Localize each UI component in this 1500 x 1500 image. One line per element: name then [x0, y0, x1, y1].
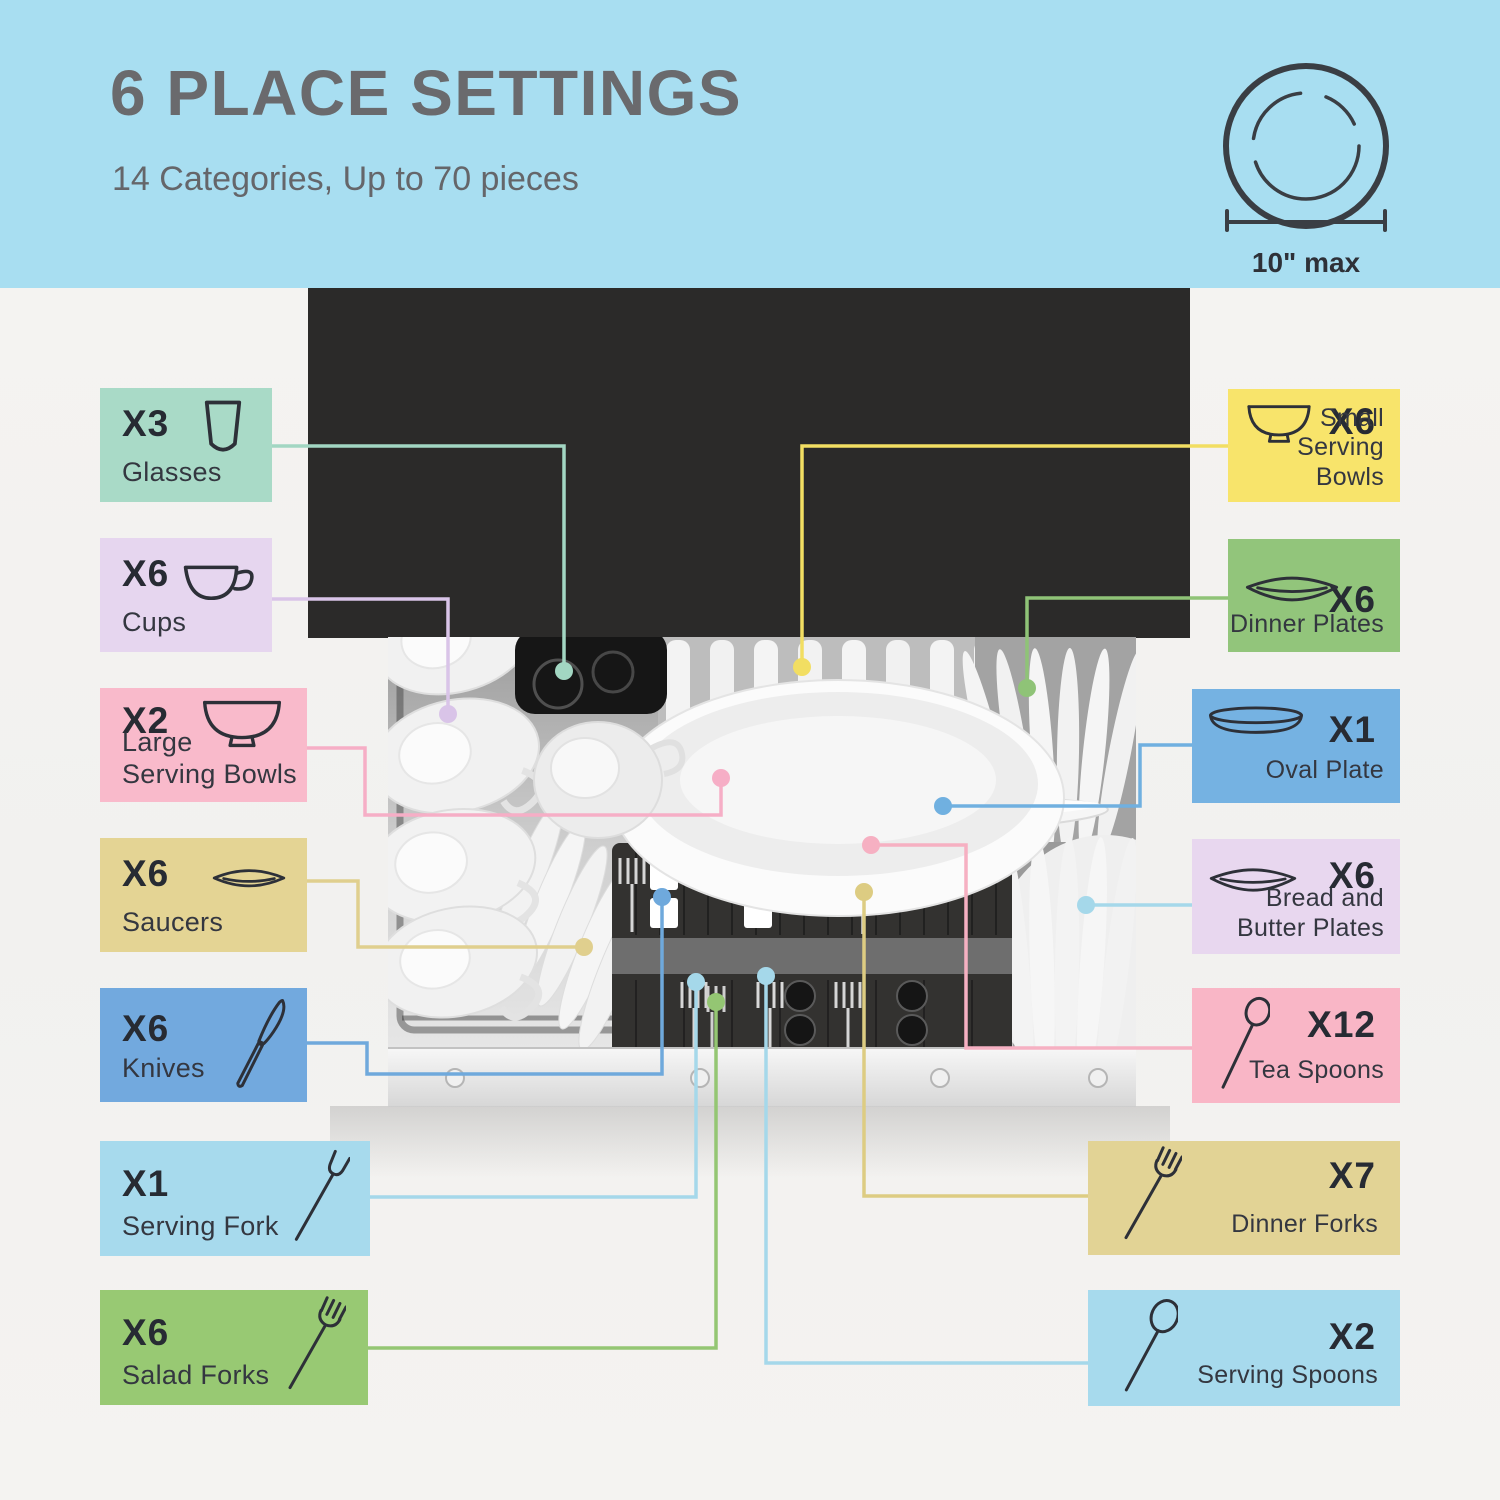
plate-size-label: 10" max	[1221, 247, 1391, 279]
item-name: Large Serving Bowls	[122, 727, 297, 791]
dot-glasses	[555, 662, 573, 680]
dot-small-serving-bowls	[793, 658, 811, 676]
glasses-group	[515, 630, 667, 714]
item-count: X2	[1329, 1316, 1376, 1358]
dishwasher-lid-panel	[308, 288, 1190, 638]
item-name: Dinner Forks	[1231, 1210, 1378, 1240]
dishwasher-interior	[360, 569, 1220, 1107]
item-name: Serving Spoons	[1197, 1361, 1378, 1391]
header-band: 6 PLACE SETTINGS 14 Categories, Up to 70…	[0, 0, 1500, 288]
cup-icon	[182, 560, 258, 608]
plate-max-icon	[1221, 46, 1391, 238]
dot-saucers	[575, 938, 593, 956]
item-name: Saucers	[122, 907, 223, 939]
dot-dinner-forks	[855, 883, 873, 901]
item-count: X12	[1307, 1004, 1376, 1046]
dot-dinner-plates	[1018, 679, 1036, 697]
plate-size-indicator: 10" max	[1221, 46, 1391, 279]
spoon-icon	[1122, 1296, 1178, 1402]
plate-icon	[1244, 575, 1340, 603]
item-name: Dinner Plates	[1230, 610, 1384, 640]
item-name: Salad Forks	[122, 1360, 269, 1392]
item-name: Oval Plate	[1266, 756, 1384, 786]
label-tea-spoons: X12 Tea Spoons	[1192, 988, 1400, 1103]
glass-icon	[198, 400, 248, 460]
label-dinner-plates: X6 Dinner Plates	[1228, 539, 1400, 652]
item-name: Cups	[122, 607, 186, 639]
item-count: X6	[122, 553, 169, 595]
knife-icon	[231, 992, 293, 1098]
label-serving-spoons: X2 Serving Spoons	[1088, 1290, 1400, 1406]
label-bread-butter-plates: X6 Bread and Butter Plates	[1192, 839, 1400, 954]
label-serving-fork: X1 Serving Fork	[100, 1141, 370, 1256]
label-small-serving-bowls: X6 Small Serving Bowls	[1228, 389, 1400, 502]
item-name: Serving Fork	[122, 1211, 279, 1243]
dot-knives	[653, 888, 671, 906]
dot-oval-plate	[934, 797, 952, 815]
front-metal-strip	[388, 1048, 1136, 1106]
photo-shadow	[330, 1106, 1170, 1178]
item-name: Tea Spoons	[1249, 1056, 1384, 1086]
dot-cups	[439, 705, 457, 723]
item-name: Knives	[122, 1053, 205, 1085]
page-subtitle: 14 Categories, Up to 70 pieces	[112, 160, 579, 199]
item-count: X1	[1329, 709, 1376, 751]
oval-plate-icon	[1206, 705, 1306, 737]
dot-serving-spoons	[757, 967, 775, 985]
dot-salad-forks	[707, 993, 725, 1011]
item-count: X7	[1329, 1155, 1376, 1197]
item-count: X6	[122, 1312, 169, 1354]
infographic-canvas: 6 PLACE SETTINGS 14 Categories, Up to 70…	[0, 0, 1500, 1500]
label-dinner-forks: X7 Dinner Forks	[1088, 1141, 1400, 1255]
item-name: Small Serving Bowls	[1228, 404, 1384, 493]
label-glasses: X3 Glasses	[100, 388, 272, 502]
item-count: X6	[122, 853, 169, 895]
item-count: X1	[122, 1163, 169, 1205]
serving-fork-icon	[292, 1146, 350, 1252]
label-cups: X6 Cups	[100, 538, 272, 652]
fork-icon	[286, 1295, 346, 1401]
fork-icon	[1122, 1145, 1182, 1251]
item-name: Bread and Butter Plates	[1237, 884, 1384, 943]
dot-bread-butter-plates	[1077, 896, 1095, 914]
dot-tea-spoons	[862, 836, 880, 854]
label-knives: X6 Knives	[100, 988, 307, 1102]
label-oval-plate: X1 Oval Plate	[1192, 689, 1400, 803]
dot-serving-fork	[687, 973, 705, 991]
dot-large-serving-bowls	[712, 769, 730, 787]
label-saucers: X6 Saucers	[100, 838, 307, 952]
item-count: X6	[122, 1008, 169, 1050]
label-salad-forks: X6 Salad Forks	[100, 1290, 368, 1405]
item-name: Glasses	[122, 457, 222, 489]
label-large-serving-bowls: X2 Large Serving Bowls	[100, 688, 307, 802]
saucer-icon	[211, 866, 287, 890]
item-count: X3	[122, 403, 169, 445]
page-title: 6 PLACE SETTINGS	[110, 56, 742, 130]
large-bowl-item	[612, 680, 1064, 916]
